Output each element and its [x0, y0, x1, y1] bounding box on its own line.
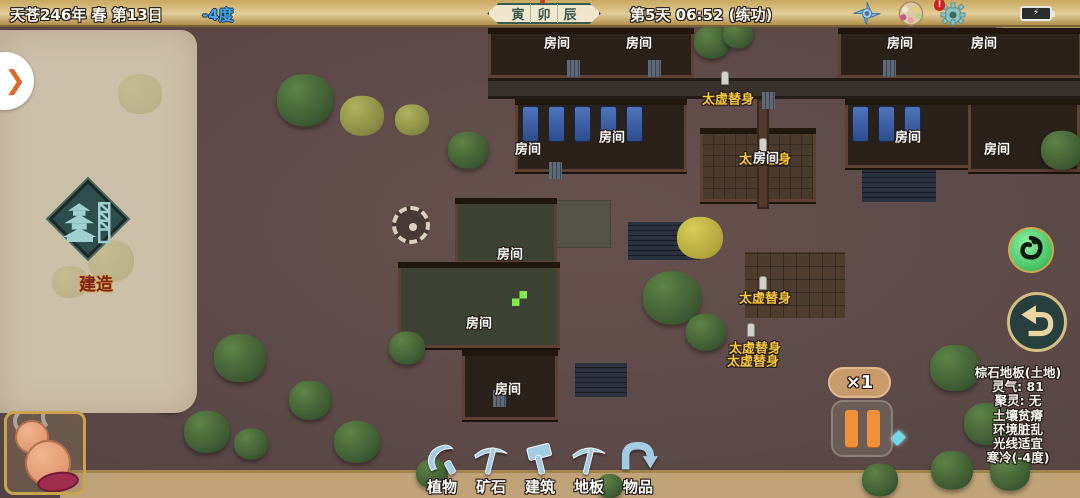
tool-label: 植物	[427, 476, 457, 497]
gate-sprite	[567, 60, 580, 77]
bottom-toolbar: 植物 矿石 建筑 地板	[419, 440, 661, 497]
temperature: -4度	[202, 4, 234, 25]
pause-icon	[845, 410, 858, 447]
map-cursor-marker	[512, 291, 527, 306]
bed-row	[522, 106, 643, 142]
gate-sprite	[762, 92, 775, 109]
undo-button[interactable]	[1007, 292, 1067, 352]
tree	[214, 334, 266, 382]
tile-info-line: 土壤贫瘠	[956, 409, 1080, 423]
alchemy-gourd-button[interactable]	[4, 411, 86, 495]
battery-icon: ⚡	[1020, 6, 1052, 21]
tile-info-line: 环境脏乱	[956, 423, 1080, 437]
tool-label: 矿石	[476, 476, 506, 497]
pause-button[interactable]	[831, 400, 893, 457]
tree	[289, 381, 331, 420]
building	[488, 78, 1080, 99]
tool-ore[interactable]: 矿石	[468, 440, 514, 497]
day-time-status: 第5天 06:52 (练功)	[630, 4, 772, 25]
pickaxe-icon	[470, 440, 512, 478]
gate-sprite	[549, 162, 562, 179]
pagoda-icon	[48, 179, 127, 258]
pickaxe-icon	[568, 440, 610, 478]
wind-spirit-button[interactable]	[1008, 227, 1054, 273]
building	[838, 28, 1080, 78]
avatar-label: 太虚替身	[729, 338, 781, 357]
tree	[395, 104, 429, 135]
water-wheel	[392, 206, 430, 244]
villager-sprite	[747, 323, 755, 337]
bed-sprite	[600, 106, 617, 142]
build-category-button[interactable]: 建造	[40, 188, 152, 300]
swirl-icon	[1010, 229, 1052, 271]
palette-icon[interactable]	[896, 1, 926, 26]
tile-info-panel: 棕石地板(土地) 灵气: 81 聚灵: 无 土壤贫瘠 环境脏乱 光线适宜 寒冷(…	[956, 366, 1080, 465]
tree	[340, 96, 384, 136]
speed-multiplier: ×1	[846, 372, 874, 393]
compass-icon[interactable]	[852, 1, 882, 26]
bed-sprite	[548, 106, 565, 142]
building	[845, 99, 971, 168]
tool-items[interactable]: 物品	[615, 440, 661, 497]
tool-building[interactable]: 建筑	[517, 440, 563, 497]
battery-charge-glyph: ⚡	[1033, 9, 1039, 18]
farm-plot	[553, 200, 611, 248]
bed-sprite	[626, 106, 643, 142]
tile-info-line: 聚灵: 无	[956, 394, 1080, 408]
gate-sprite	[648, 60, 661, 77]
building	[488, 28, 694, 78]
gate-sprite	[883, 60, 896, 77]
tree	[277, 74, 333, 126]
bed-sprite	[852, 106, 869, 142]
undo-arrow-icon	[1016, 301, 1058, 343]
time-slot: 辰	[557, 4, 577, 23]
panel-tree-decor	[118, 74, 162, 114]
villager-sprite	[759, 138, 767, 152]
hammer-icon	[519, 440, 561, 478]
tool-label: 物品	[623, 476, 653, 497]
tree	[677, 217, 723, 259]
tile-info-line: 寒冷(-4度)	[956, 451, 1080, 465]
tree	[334, 421, 380, 463]
gear-icon[interactable]: !	[938, 1, 968, 26]
bed-sprite	[522, 106, 539, 142]
bed-sprite	[878, 106, 895, 142]
build-button-label: 建造	[40, 270, 152, 295]
building	[462, 350, 558, 420]
return-arrow-icon	[617, 440, 659, 478]
tool-plants[interactable]: 植物	[419, 440, 465, 497]
gear-alert-badge: !	[934, 0, 945, 11]
villager-sprite	[721, 71, 729, 85]
tree	[1041, 131, 1080, 170]
bed-sprite	[574, 106, 591, 142]
bed-sprite	[904, 106, 921, 142]
time-slot-active: 卯	[530, 4, 550, 23]
building	[515, 99, 687, 172]
top-bar: 天苍246年 春 第13日 -4度 寅 卯 辰 第5天 06:52 (练功) !	[0, 0, 1080, 27]
bed-row	[852, 106, 921, 142]
avatar-label: 太虚替身	[727, 351, 779, 370]
gate-sprite	[493, 390, 506, 407]
tree	[448, 132, 488, 169]
time-slot-badge[interactable]: 寅 卯 辰	[487, 3, 601, 24]
tool-floor[interactable]: 地板	[566, 440, 612, 497]
tree	[184, 411, 230, 453]
building	[757, 99, 769, 209]
game-speed-badge[interactable]: ×1	[828, 367, 891, 398]
villager-sprite	[759, 276, 767, 290]
game-screen: 太虚替身太虚替身太虚替身太虚替身太虚替身房间房间房间房间房间房间房间房间房间房间…	[0, 0, 1080, 498]
tree	[862, 463, 898, 496]
tree	[234, 428, 268, 459]
building	[455, 198, 557, 264]
building	[398, 262, 560, 348]
tree	[389, 331, 425, 364]
sickle-icon	[421, 440, 463, 478]
game-date: 天苍246年 春 第13日	[10, 4, 163, 25]
time-slot: 寅	[511, 4, 524, 23]
tool-label: 地板	[574, 476, 604, 497]
chevron-right-icon: ❯	[4, 68, 26, 94]
pause-icon	[867, 410, 880, 447]
tool-label: 建筑	[525, 476, 555, 497]
farm-plot	[575, 363, 627, 397]
tree	[686, 314, 726, 351]
